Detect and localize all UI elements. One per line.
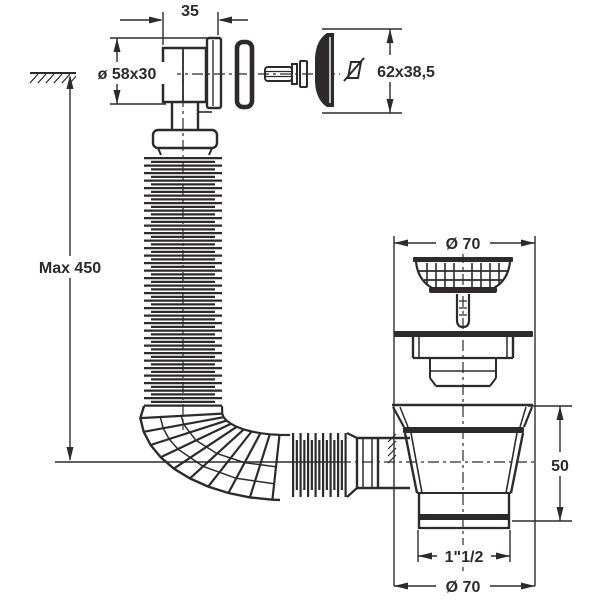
dim-label-1-1-2: 1"1/2 (445, 549, 484, 566)
hose-connection-nut (347, 433, 410, 497)
dimension-outlet-thread: 1"1/2 (418, 530, 510, 567)
dim-label-35: 35 (181, 3, 199, 20)
centerlines (55, 52, 536, 594)
elbow-flange-plate (207, 38, 221, 108)
dimension-strainer-diameter: Ø 70 (388, 232, 535, 586)
technical-drawing: 35 ø 58x30 62x38,5 Max 450 (0, 0, 600, 600)
dimension-hose-max-length: Max 450 (28, 75, 112, 461)
drawing-canvas: 35 ø 58x30 62x38,5 Max 450 (0, 0, 600, 600)
body-band (403, 427, 524, 433)
hose-bend (140, 406, 290, 500)
dim-label-62x38-5: 62x38,5 (377, 64, 435, 81)
dim-label-max-450: Max 450 (39, 260, 101, 277)
flexible-hose (140, 130, 410, 500)
dimension-flange-diameter: Ø 70 (394, 575, 535, 597)
overflow-elbow-assembly (163, 33, 334, 131)
dimension-overflow-cap: 62x38,5 (322, 29, 447, 113)
dim-label-70-top: Ø 70 (446, 236, 481, 253)
overflow-cap (315, 33, 334, 107)
wall-section-hatch (30, 73, 80, 83)
hose-top-cuff (153, 130, 217, 148)
dim-label-50: 50 (551, 458, 569, 475)
flange-plate (394, 331, 533, 337)
dim-label-70-bottom: Ø 70 (446, 579, 481, 596)
dim-label-58x30: ø 58x30 (98, 66, 157, 83)
body-tailpiece (419, 493, 509, 529)
basket-bottom (429, 287, 497, 293)
